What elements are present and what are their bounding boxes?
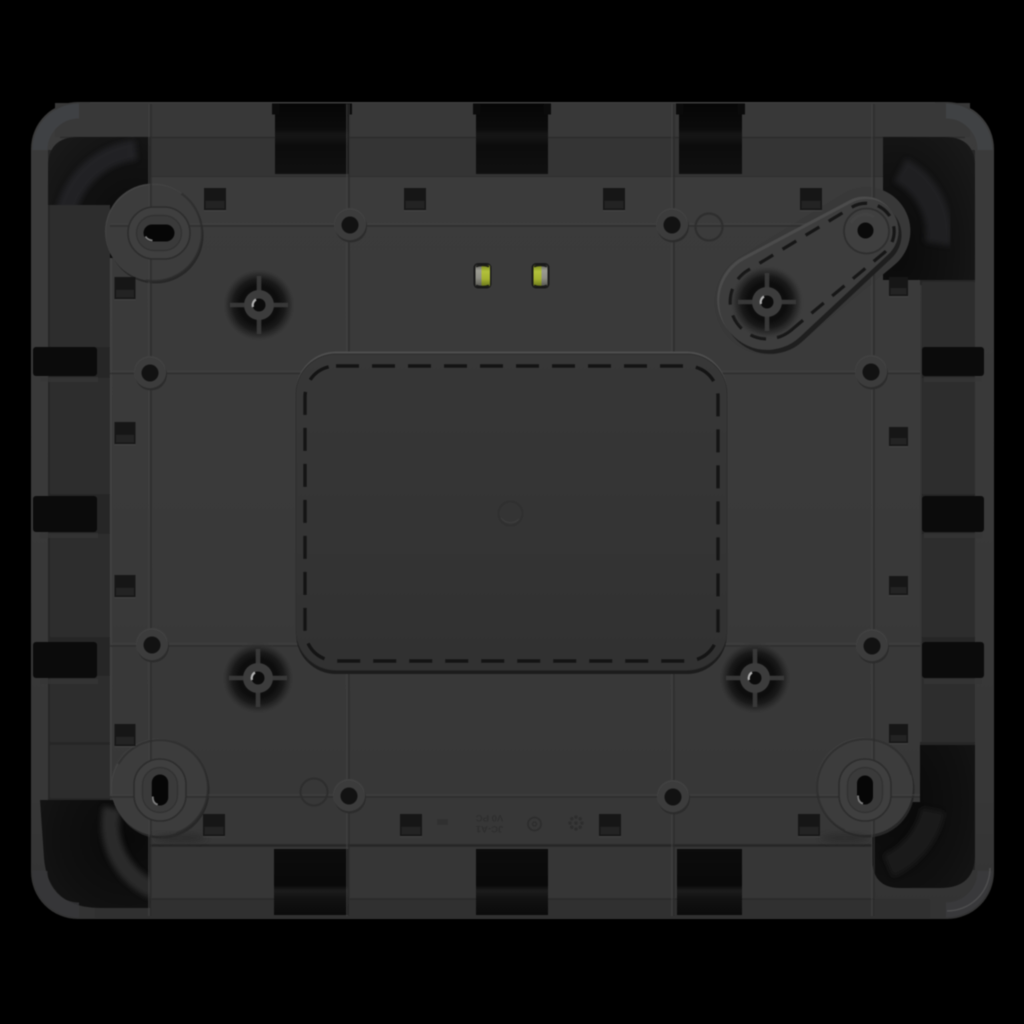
svg-text:V0 PC: V0 PC: [476, 812, 504, 823]
svg-text:JC-A1: JC-A1: [475, 823, 503, 834]
